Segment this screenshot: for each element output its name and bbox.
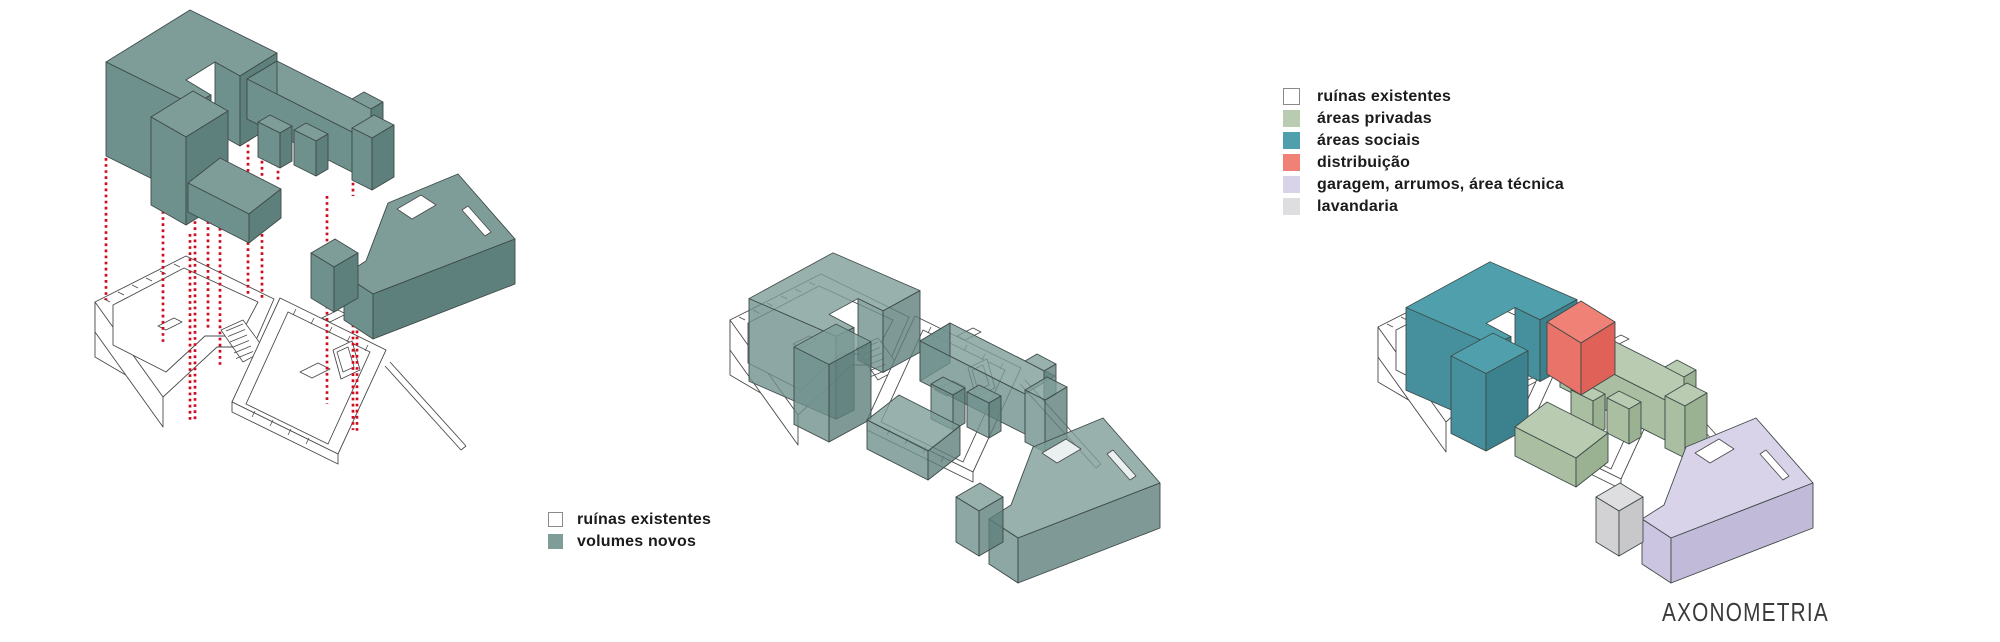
axonometric-board: ruínas existentes volumes novos ruínas e… <box>0 0 2000 642</box>
volume-bar <box>247 61 394 190</box>
legend-item-distribuicao: distribuição <box>1283 154 1564 171</box>
legend-label: volumes novos <box>577 533 696 550</box>
axonometric-drawing-canvas <box>0 0 2000 642</box>
legend-item-areas-privadas: áreas privadas <box>1283 110 1564 127</box>
legend-program: ruínas existentes áreas privadas áreas s… <box>1283 88 1564 215</box>
volume-lavandaria <box>1596 483 1643 556</box>
legend-item-volumes-novos: volumes novos <box>548 533 711 550</box>
legend-swatch-areas-privadas <box>1283 110 1300 127</box>
legend-label: garagem, arrumos, área técnica <box>1317 176 1564 193</box>
legend-label: distribuição <box>1317 154 1410 171</box>
legend-item-ruinas: ruínas existentes <box>1283 88 1564 105</box>
legend-swatch-garagem <box>1283 176 1300 193</box>
page-title: AXONOMETRIA <box>1662 597 1829 628</box>
volume-small-box <box>1596 483 1643 556</box>
volume-wing <box>989 418 1160 583</box>
legend-label: áreas sociais <box>1317 132 1420 149</box>
legend-swatch-ruinas <box>1283 88 1300 105</box>
legend-item-ruinas: ruínas existentes <box>548 511 711 528</box>
legend-swatch-volumes-novos <box>548 534 563 549</box>
legend-swatch-lavandaria <box>1283 198 1300 215</box>
diagram-exploded-axonometric <box>95 10 515 464</box>
diagram-program-colours <box>1378 262 1813 583</box>
volume-small-box <box>956 483 1003 556</box>
legend-item-lavandaria: lavandaria <box>1283 198 1564 215</box>
legend-swatch-ruinas <box>548 512 563 527</box>
legend-label: ruínas existentes <box>1317 88 1451 105</box>
diagram-volumes-in-ruins <box>730 253 1160 583</box>
legend-label: ruínas existentes <box>577 511 711 528</box>
legend-swatch-areas-sociais <box>1283 132 1300 149</box>
volume-wing <box>344 174 515 339</box>
legend-label: áreas privadas <box>1317 110 1432 127</box>
volume-small-box <box>311 239 358 312</box>
legend-label: lavandaria <box>1317 198 1398 215</box>
new-volumes-implanted <box>749 253 1160 583</box>
legend-swatch-distribuicao <box>1283 154 1300 171</box>
legend-item-areas-sociais: áreas sociais <box>1283 132 1564 149</box>
legend-exploded: ruínas existentes volumes novos <box>548 511 711 550</box>
legend-item-garagem: garagem, arrumos, área técnica <box>1283 176 1564 193</box>
